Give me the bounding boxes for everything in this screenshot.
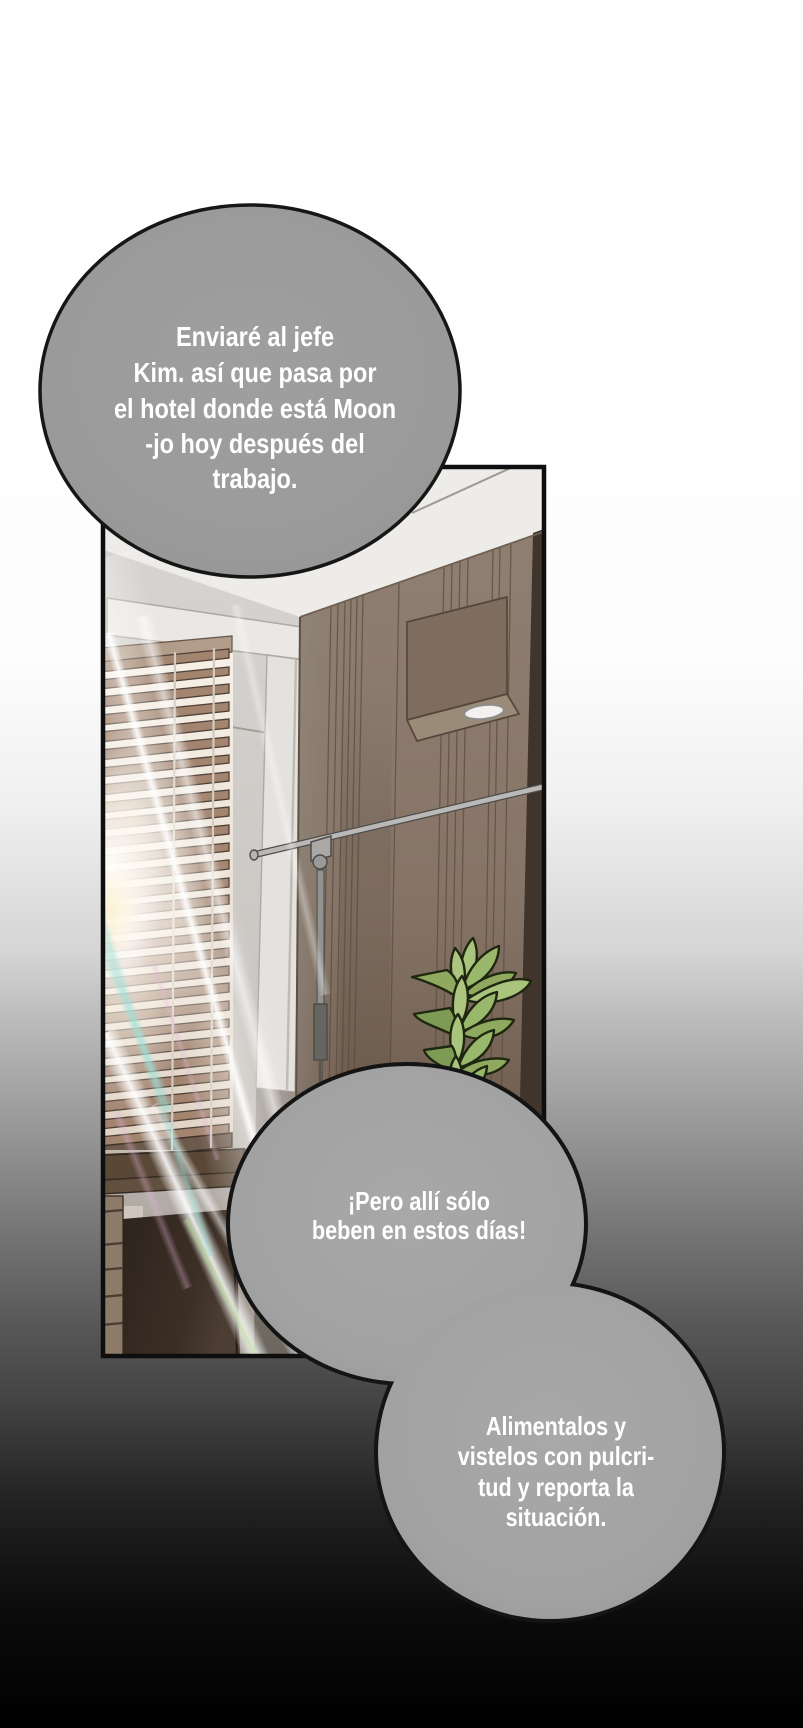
svg-text:vistelos con pulcri-: vistelos con pulcri- <box>458 1442 655 1471</box>
svg-text:¡Pero allí sólo: ¡Pero allí sólo <box>348 1188 490 1216</box>
svg-text:trabajo.: trabajo. <box>213 464 298 494</box>
svg-text:-jo hoy después del: -jo hoy después del <box>145 429 364 459</box>
svg-text:el hotel donde está Moon: el hotel donde está Moon <box>114 394 396 424</box>
svg-text:Alimentalos y: Alimentalos y <box>486 1412 627 1441</box>
svg-text:tud y reporta la: tud y reporta la <box>478 1473 634 1502</box>
svg-text:Enviaré al jefe: Enviaré al jefe <box>176 322 334 352</box>
svg-text:beben en estos días!: beben en estos días! <box>312 1217 526 1245</box>
svg-text:Kim. así que pasa por: Kim. así que pasa por <box>134 358 377 388</box>
svg-text:situación.: situación. <box>506 1503 607 1532</box>
